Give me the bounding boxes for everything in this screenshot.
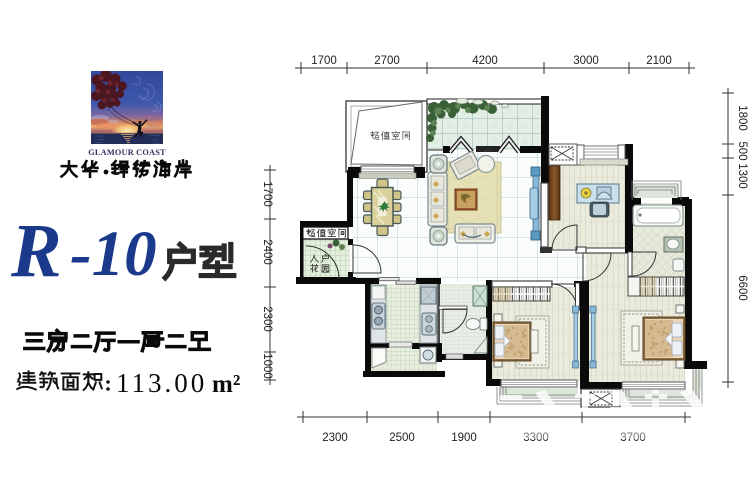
svg-text:2500: 2500	[389, 432, 415, 444]
svg-text:1900: 1900	[451, 432, 477, 444]
svg-text:R: R	[10, 209, 62, 293]
svg-text:1700: 1700	[261, 181, 273, 207]
svg-text:2400: 2400	[261, 239, 273, 265]
svg-text:113.00: 113.00	[116, 368, 207, 398]
svg-text:m²: m²	[212, 371, 240, 398]
svg-text:1000: 1000	[261, 353, 273, 379]
svg-text:1700: 1700	[311, 55, 337, 67]
svg-text:1800: 1800	[736, 105, 748, 131]
svg-text:3000: 3000	[573, 55, 599, 67]
svg-text:-10: -10	[70, 218, 157, 290]
svg-text:2700: 2700	[374, 55, 400, 67]
svg-text:1300: 1300	[736, 163, 748, 189]
svg-text:2300: 2300	[322, 432, 348, 444]
svg-text:4200: 4200	[472, 55, 498, 67]
svg-text:2300: 2300	[261, 306, 273, 332]
svg-text:6600: 6600	[736, 275, 748, 301]
svg-text:2100: 2100	[646, 55, 672, 67]
svg-text:GLAMOUR COAST: GLAMOUR COAST	[88, 148, 166, 157]
svg-text:500: 500	[736, 141, 748, 160]
